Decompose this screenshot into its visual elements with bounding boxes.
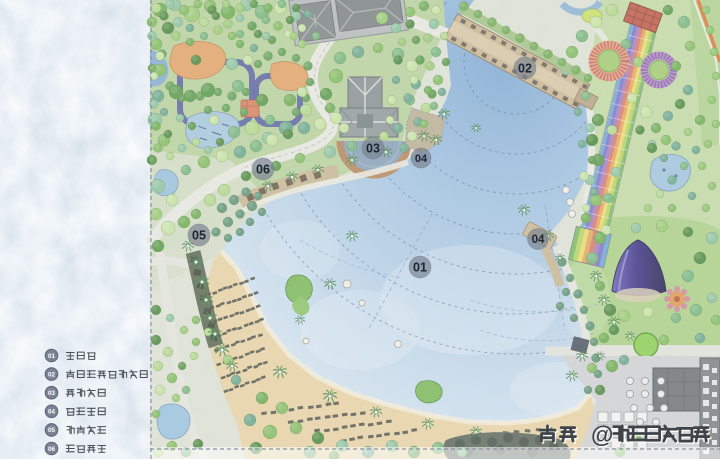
svg-text:03: 03 [366,142,380,156]
svg-text:04: 04 [415,153,428,165]
svg-text:03: 03 [48,390,56,397]
svg-text:01: 01 [48,353,56,360]
svg-text:04: 04 [48,409,56,416]
svg-text:04: 04 [532,234,545,246]
svg-text:01: 01 [413,261,427,275]
svg-text:06: 06 [48,446,56,453]
svg-text:06: 06 [256,163,270,177]
svg-text:05: 05 [192,229,206,243]
svg-text:02: 02 [518,62,532,76]
svg-text:@: @ [591,422,613,448]
svg-text:02: 02 [48,371,56,378]
svg-text:05: 05 [48,427,56,434]
